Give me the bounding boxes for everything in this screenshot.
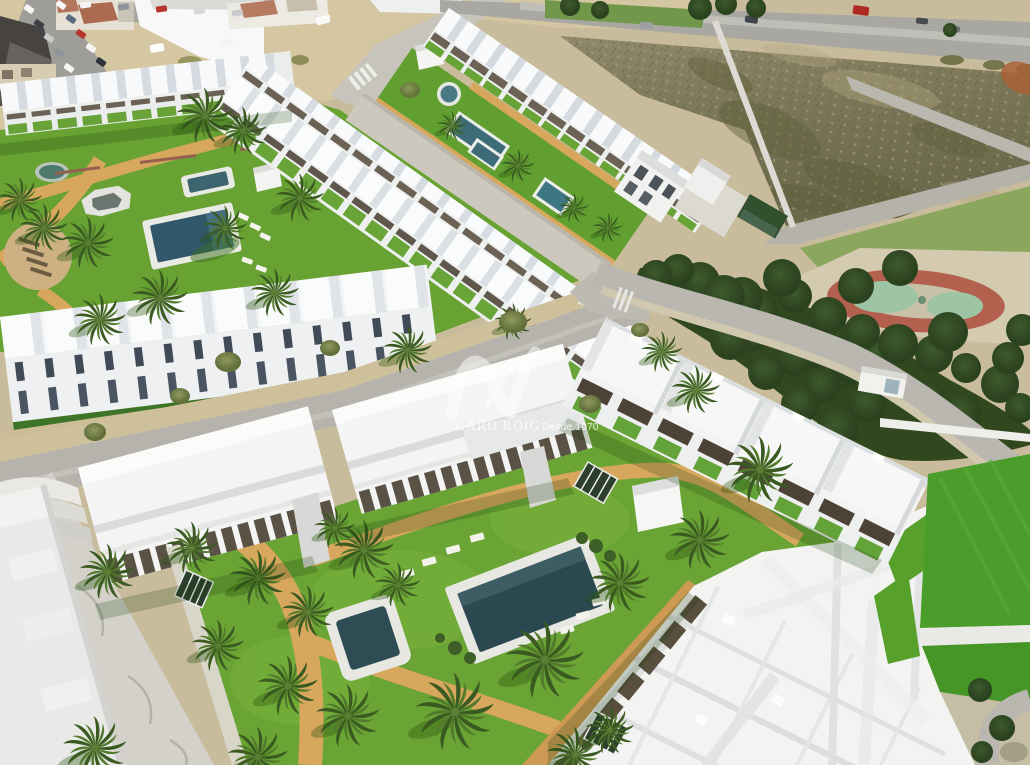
svg-text:CARO ROIG: CARO ROIG: [456, 418, 541, 433]
svg-text:Desde 1970: Desde 1970: [542, 421, 599, 433]
